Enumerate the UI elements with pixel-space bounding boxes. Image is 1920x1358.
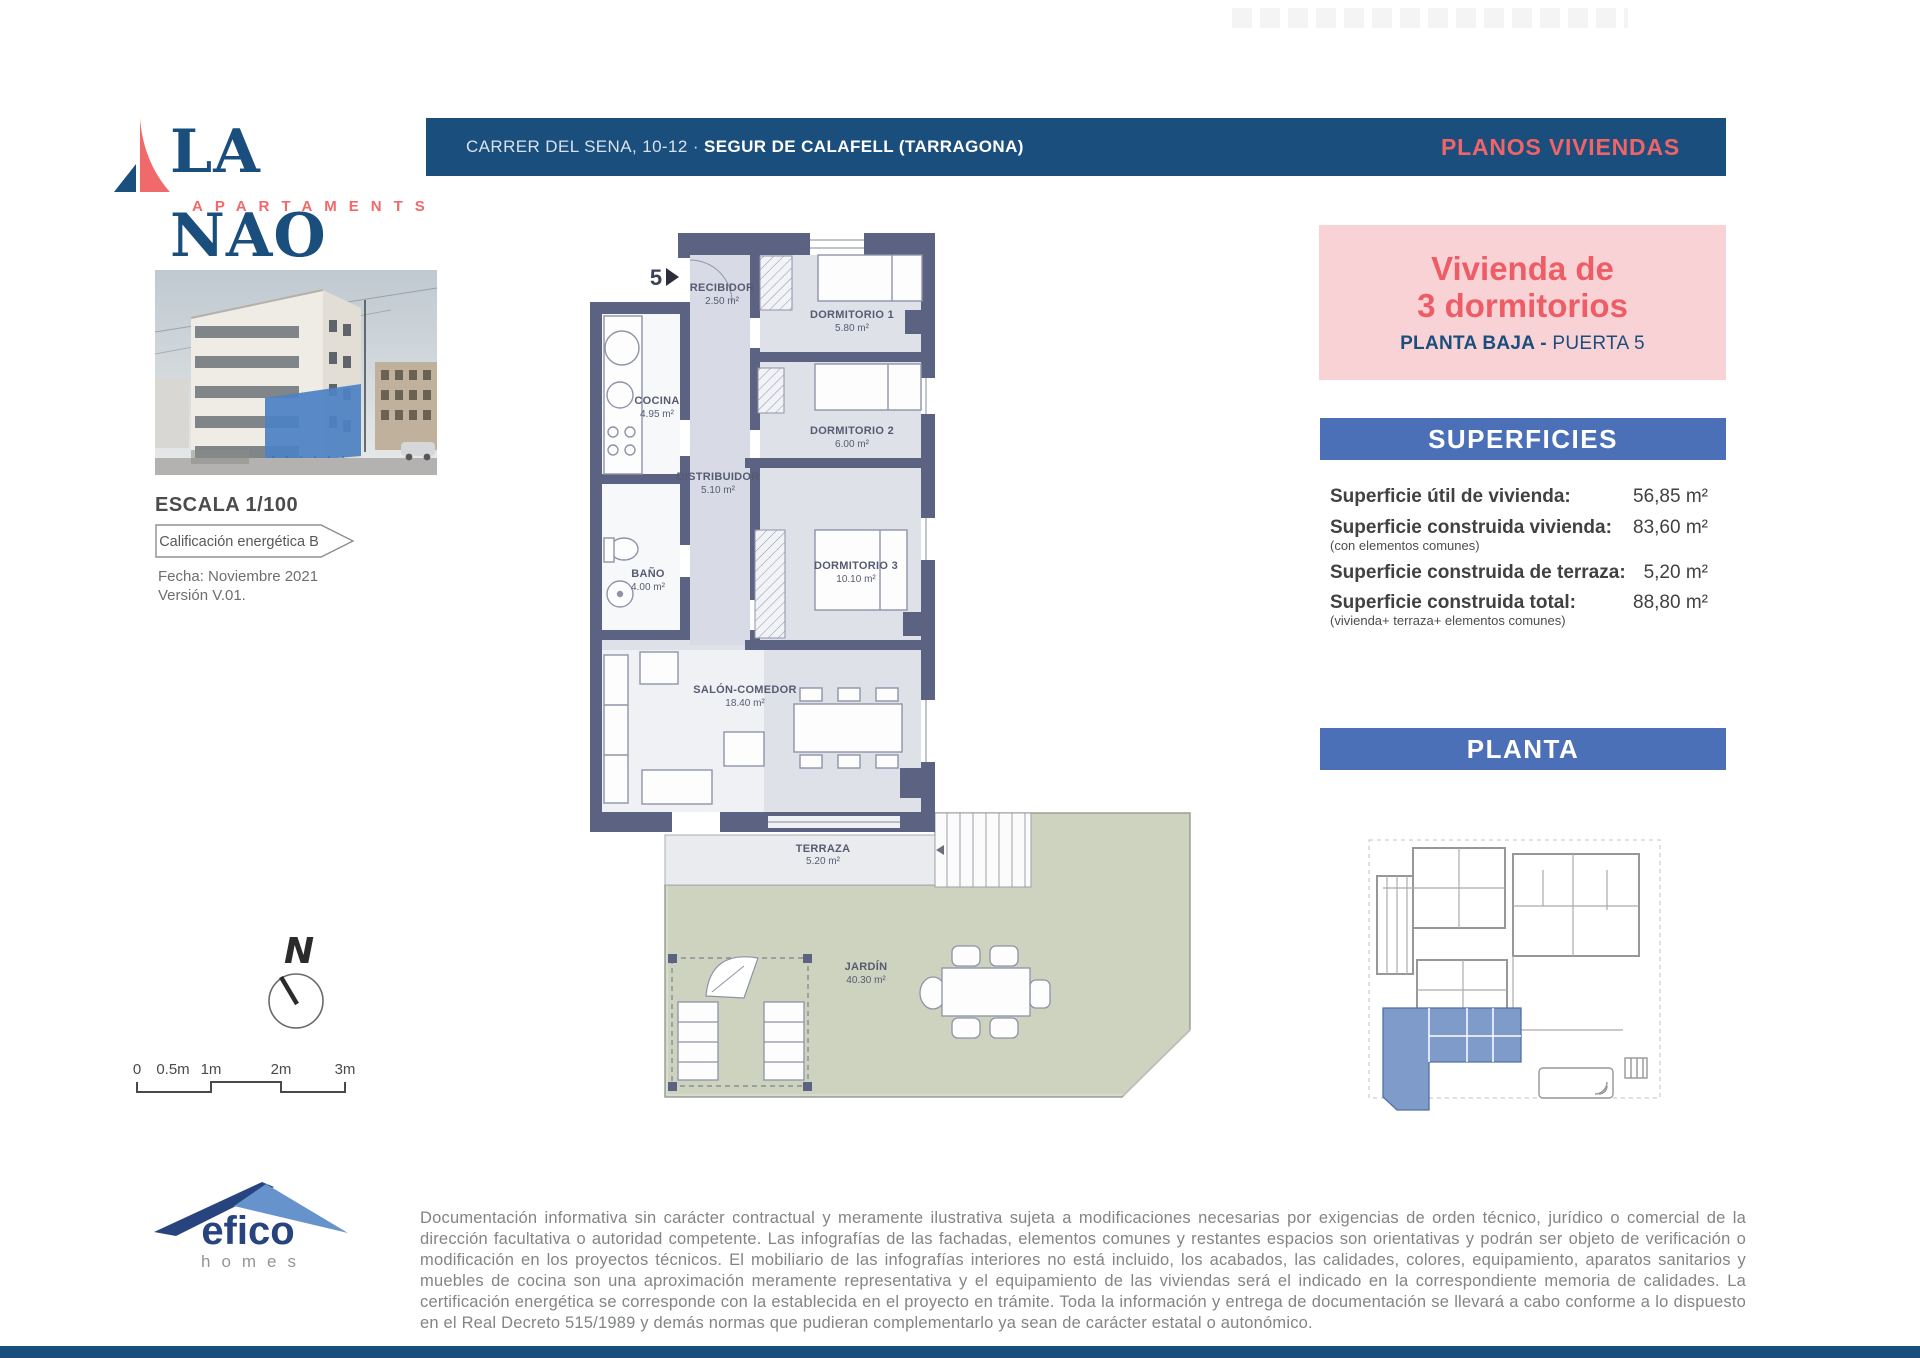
scale-note: ESCALA 1/100 bbox=[155, 494, 298, 517]
scale-tick-label: 0.5m bbox=[156, 1061, 189, 1078]
row-value: 56,85 m² bbox=[1633, 486, 1708, 508]
svg-text:6.00 m²: 6.00 m² bbox=[835, 439, 870, 450]
row-value: 5,20 m² bbox=[1644, 562, 1708, 584]
room-label-dormitorio3: DORMITORIO 3 bbox=[814, 560, 898, 572]
unit-card: Vivienda de 3 dormitorios PLANTA BAJA - … bbox=[1319, 225, 1726, 380]
floor-plan: 5 RECIBIDOR 2.50 m² DORMITORIO 1 5.80 m²… bbox=[560, 190, 1220, 1140]
brochure-page: LA NAO APARTAMENTS CARRER DEL SENA, 10-1… bbox=[0, 0, 1920, 1358]
room-label-cocina: COCINA bbox=[634, 395, 679, 407]
room-label-bano: BAÑO bbox=[631, 567, 665, 580]
row-sublabel: (con elementos comunes) bbox=[1330, 538, 1480, 553]
svg-text:10.10 m²: 10.10 m² bbox=[836, 574, 876, 585]
date-line: Fecha: Noviembre 2021 bbox=[158, 567, 318, 586]
sun-lounger-icon bbox=[678, 1002, 718, 1080]
site-mini-plan bbox=[1363, 810, 1673, 1113]
room-label-dormitorio2: DORMITORIO 2 bbox=[810, 425, 894, 437]
room-label-salon: SALÓN-COMEDOR bbox=[693, 683, 797, 696]
brand-subtitle: APARTAMENTS bbox=[192, 198, 432, 215]
unit-title-line2: 3 dormitorios bbox=[1417, 287, 1628, 324]
room-label-dormitorio1: DORMITORIO 1 bbox=[810, 309, 894, 321]
superficies-table: Superficie útil de vivienda: 56,85 m² Su… bbox=[1330, 470, 1722, 650]
address: CARRER DEL SENA, 10-12 · SEGUR DE CALAFE… bbox=[466, 137, 1024, 157]
door-number-marker: 5 bbox=[650, 265, 679, 290]
highlighted-unit bbox=[1383, 1008, 1521, 1110]
developer-brand-sub: homes bbox=[201, 1252, 307, 1271]
date-version: Fecha: Noviembre 2021 Versión V.01. bbox=[158, 567, 318, 605]
svg-text:5.20 m²: 5.20 m² bbox=[806, 856, 841, 867]
address-separator: · bbox=[688, 137, 704, 156]
developer-brand: efico bbox=[201, 1209, 294, 1253]
row-label: Superficie construida vivienda: bbox=[1330, 517, 1612, 538]
header-bar: CARRER DEL SENA, 10-12 · SEGUR DE CALAFE… bbox=[426, 118, 1726, 176]
svg-text:40.30 m²: 40.30 m² bbox=[846, 975, 886, 986]
svg-text:4.00 m²: 4.00 m² bbox=[631, 582, 666, 593]
address-street: CARRER DEL SENA, 10-12 bbox=[466, 137, 688, 156]
scale-tick-label: 1m bbox=[201, 1061, 222, 1078]
legal-disclaimer: Documentación informativa sin carácter c… bbox=[420, 1208, 1746, 1334]
unit-door: PUERTA 5 bbox=[1552, 333, 1645, 354]
svg-text:2.50 m²: 2.50 m² bbox=[705, 296, 740, 307]
dining-table-icon bbox=[794, 704, 902, 752]
scale-bar: 0 0.5m 1m 2m 3m bbox=[130, 1060, 360, 1102]
address-city: SEGUR DE CALAFELL (TARRAGONA) bbox=[704, 137, 1024, 156]
row-value: 88,80 m² bbox=[1633, 592, 1708, 614]
sofa-icon bbox=[604, 655, 628, 803]
room-label-terraza: TERRAZA bbox=[796, 843, 851, 855]
door-number: 5 bbox=[650, 265, 662, 290]
document-title: PLANOS VIVIENDAS bbox=[1441, 134, 1680, 161]
scale-tick-label: 0 bbox=[133, 1061, 141, 1078]
unit-title-line1: Vivienda de bbox=[1431, 250, 1614, 287]
room-label-recibidor: RECIBIDOR bbox=[690, 282, 754, 294]
brand-name: LA NAO bbox=[170, 110, 430, 194]
footer-bar bbox=[0, 1346, 1920, 1358]
unit-floor-door: PLANTA BAJA - PUERTA 5 bbox=[1400, 333, 1645, 355]
compass-north-label: N bbox=[284, 931, 314, 972]
svg-text:5.10 m²: 5.10 m² bbox=[701, 485, 736, 496]
energy-badge: Calificación energética B bbox=[155, 524, 357, 558]
scale-tick-label: 3m bbox=[335, 1061, 356, 1078]
row-label: Superficie útil de vivienda: bbox=[1330, 486, 1571, 507]
superficies-header: SUPERFICIES bbox=[1320, 418, 1726, 460]
corridor-floor bbox=[690, 255, 750, 645]
room-label-distribuidor: DISTRIBUIDOR bbox=[676, 471, 759, 483]
svg-text:5.80 m²: 5.80 m² bbox=[835, 323, 870, 334]
developer-logo: efico homes bbox=[150, 1176, 355, 1276]
energy-badge-label: Calificación energética B bbox=[159, 534, 319, 550]
stairs bbox=[935, 813, 1031, 887]
building-photo bbox=[155, 270, 437, 475]
bed-icon bbox=[818, 255, 922, 301]
scale-tick-label: 2m bbox=[271, 1061, 292, 1078]
planta-header: PLANTA bbox=[1320, 728, 1726, 770]
svg-text:4.95 m²: 4.95 m² bbox=[640, 409, 675, 420]
top-comb-decoration bbox=[1232, 8, 1628, 28]
sail-icon bbox=[112, 118, 170, 194]
row-label: Superficie construida de terraza: bbox=[1330, 562, 1626, 583]
version-line: Versión V.01. bbox=[158, 586, 318, 605]
compass-icon: N bbox=[250, 925, 350, 1037]
svg-text:18.40 m²: 18.40 m² bbox=[725, 698, 765, 709]
row-value: 83,60 m² bbox=[1633, 517, 1708, 539]
garden-table-icon bbox=[942, 968, 1030, 1016]
row-sublabel: (vivienda+ terraza+ elementos comunes) bbox=[1330, 613, 1566, 628]
row-label: Superficie construida total: bbox=[1330, 592, 1576, 613]
unit-floor: PLANTA BAJA - bbox=[1400, 333, 1552, 354]
room-label-jardin: JARDÍN bbox=[845, 960, 888, 973]
